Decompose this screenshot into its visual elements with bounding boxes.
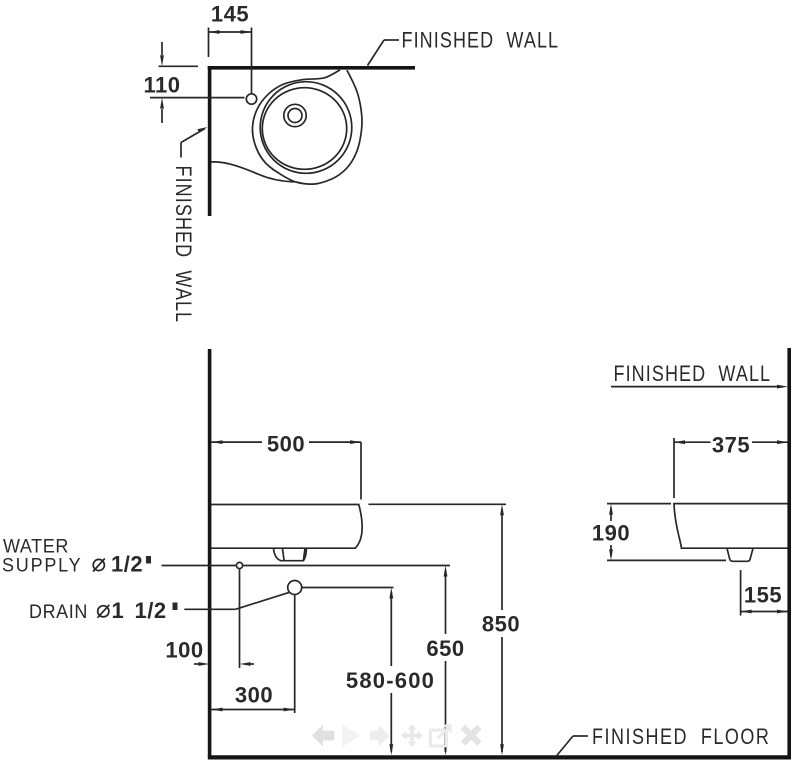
svg-text:DRAIN: DRAIN — [29, 600, 88, 622]
svg-text:1: 1 — [112, 598, 125, 623]
svg-text:145: 145 — [211, 2, 249, 27]
svg-text:FINISHED WALL: FINISHED WALL — [402, 29, 560, 53]
svg-text:FINISHED WALL: FINISHED WALL — [170, 166, 194, 324]
svg-text:155: 155 — [744, 583, 782, 608]
svg-text:1/2: 1/2 — [135, 598, 167, 623]
svg-text:100: 100 — [165, 638, 203, 663]
svg-text:190: 190 — [592, 521, 630, 546]
svg-text:650: 650 — [426, 636, 464, 661]
svg-text:110: 110 — [144, 73, 181, 98]
svg-text:580-600: 580-600 — [346, 668, 435, 693]
svg-text:1/2: 1/2 — [111, 552, 143, 577]
svg-text:SUPPLY: SUPPLY — [2, 554, 82, 576]
svg-text:850: 850 — [482, 612, 520, 637]
svg-text:FINISHED WALL: FINISHED WALL — [614, 362, 772, 386]
svg-text:500: 500 — [267, 432, 305, 457]
svg-text:375: 375 — [712, 433, 750, 458]
svg-text:300: 300 — [235, 683, 273, 708]
svg-text:FINISHED FLOOR: FINISHED FLOOR — [592, 725, 770, 749]
